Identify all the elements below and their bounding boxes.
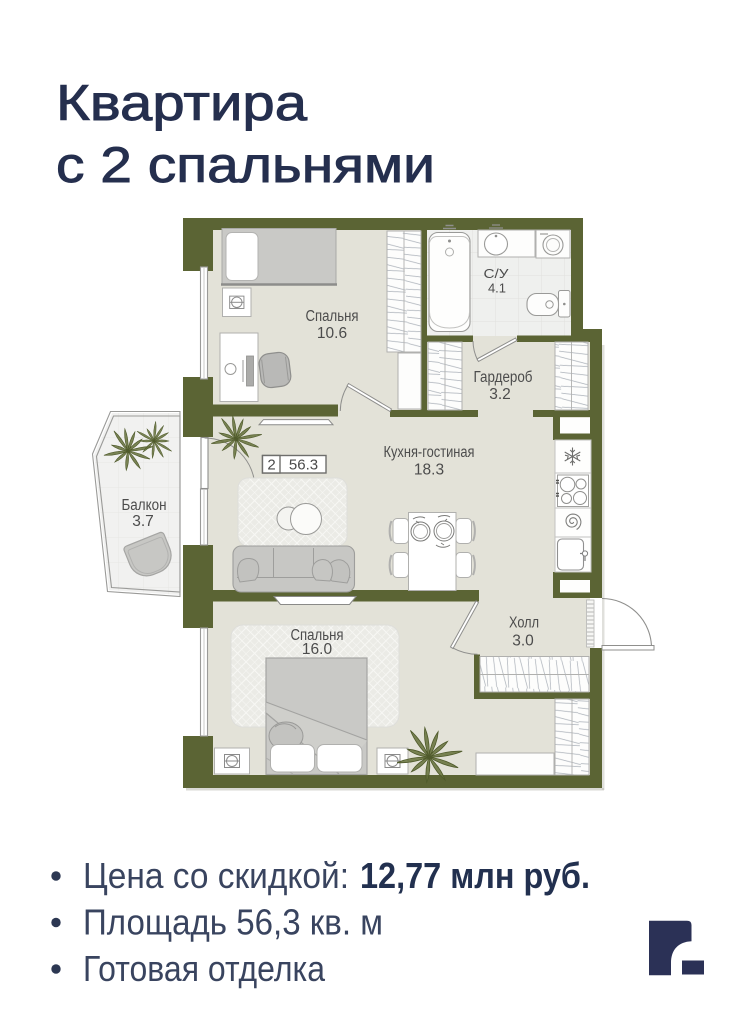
svg-text:3.7: 3.7 (132, 513, 154, 530)
svg-text:3.2: 3.2 (489, 386, 511, 403)
svg-text:16.0: 16.0 (302, 641, 333, 658)
svg-text:Квартира: Квартира (56, 75, 307, 131)
svg-text:10.6: 10.6 (317, 325, 347, 342)
svg-text:С/У: С/У (484, 266, 510, 281)
svg-text:3.0: 3.0 (512, 633, 534, 650)
svg-text:Спальня: Спальня (306, 308, 359, 325)
svg-text:Цена со скидкой:: Цена со скидкой: (83, 855, 349, 896)
svg-text:18.3: 18.3 (414, 462, 444, 479)
svg-text:с 2 спальнями: с 2 спальнями (56, 137, 435, 193)
svg-text:12,77 млн руб.: 12,77 млн руб. (360, 855, 590, 896)
svg-text:4.1: 4.1 (488, 281, 506, 296)
svg-text:Площадь 56,3 кв. м: Площадь 56,3 кв. м (83, 902, 383, 943)
svg-text:56.3: 56.3 (289, 457, 318, 474)
svg-text:Холл: Холл (509, 615, 539, 632)
svg-text:Кухня-гостиная: Кухня-гостиная (384, 444, 475, 461)
svg-text:Гардероб: Гардероб (474, 369, 533, 386)
svg-text:Готовая отделка: Готовая отделка (83, 948, 326, 989)
svg-text:Балкон: Балкон (122, 497, 167, 514)
svg-text:2: 2 (267, 457, 275, 474)
